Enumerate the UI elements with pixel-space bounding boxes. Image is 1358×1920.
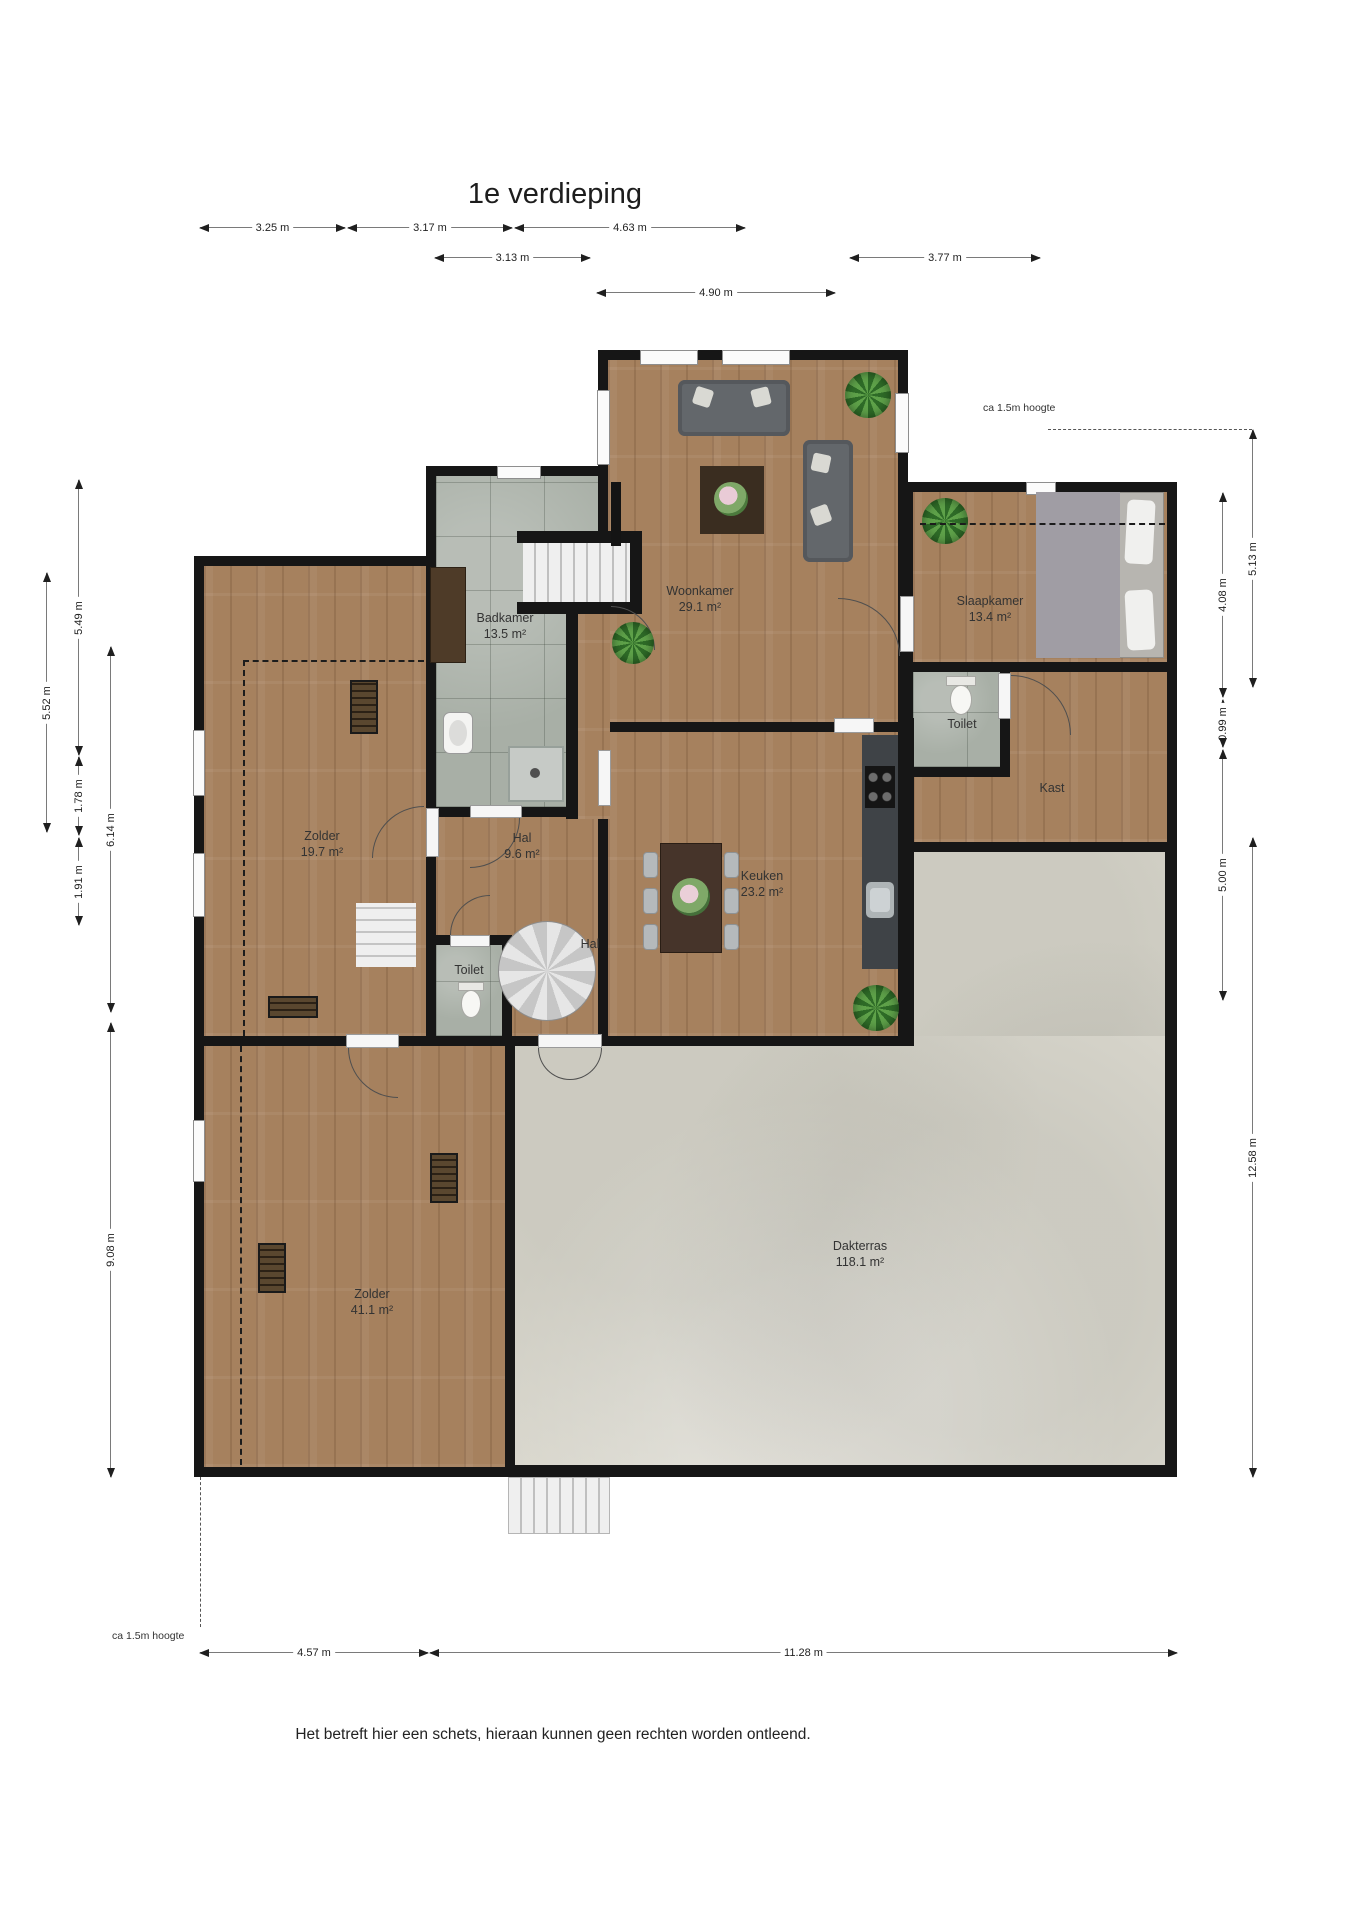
- room-label-kast: Kast: [1039, 780, 1064, 796]
- dimension: 4.63 m: [515, 227, 745, 228]
- dimension: 11.28 m: [430, 1652, 1177, 1653]
- chair: [724, 888, 739, 914]
- shower-drain: [530, 768, 540, 778]
- toilet-bowl: [461, 990, 481, 1018]
- knee-wall-line: [243, 660, 245, 1036]
- wall: [566, 602, 578, 819]
- terrace-door: [538, 1034, 602, 1048]
- room-label-dakterras: Dakterras118.1 m²: [833, 1238, 887, 1271]
- room-label-keuken: Keuken23.2 m²: [741, 868, 783, 901]
- disclaimer-text: Het betreft hier een schets, hieraan kun…: [153, 1726, 953, 1744]
- zolder-door: [346, 1034, 399, 1048]
- dimension: 9.08 m: [110, 1023, 111, 1477]
- room-label-hal-groot: Hal9.6 m²: [504, 830, 539, 863]
- roof-window: [268, 996, 318, 1018]
- room-label-badkamer: Badkamer13.5 m²: [477, 610, 534, 643]
- window: [193, 730, 205, 796]
- bathroom-door: [470, 805, 522, 818]
- plant: [845, 372, 891, 418]
- roof-window: [350, 680, 378, 734]
- toilet-door: [998, 673, 1011, 719]
- zolder-door: [426, 808, 439, 857]
- dimension: 4.57 m: [200, 1652, 428, 1653]
- room-label-zolder-klein: Zolder19.7 m²: [301, 828, 343, 861]
- window: [497, 466, 541, 479]
- dimension: 1.91 m: [78, 838, 79, 925]
- plant: [922, 498, 968, 544]
- room-zolder-groot: [194, 1036, 515, 1477]
- chair: [643, 852, 658, 878]
- wall: [517, 531, 642, 543]
- dimension: 0.99 m: [1222, 700, 1223, 747]
- toilet-door: [450, 935, 490, 947]
- window: [640, 350, 698, 365]
- height-note-line: [1048, 429, 1252, 430]
- flower-bouquet: [672, 878, 710, 916]
- roof-window: [430, 1153, 458, 1203]
- window: [193, 853, 205, 917]
- room-label-woonkamer: Woonkamer29.1 m²: [666, 583, 733, 616]
- dimension: 5.49 m: [78, 480, 79, 755]
- dimension: 3.17 m: [348, 227, 512, 228]
- dimension: 5.52 m: [46, 573, 47, 832]
- dimension: 5.00 m: [1222, 750, 1223, 1000]
- bathroom-cabinet: [430, 567, 466, 663]
- floor-plan: 1e verdieping: [0, 0, 1358, 1920]
- room-label-slaapkamer: Slaapkamer13.4 m²: [957, 593, 1024, 626]
- dimension: 3.13 m: [435, 257, 590, 258]
- knee-wall-line: [243, 660, 424, 662]
- dimension: 4.90 m: [597, 292, 835, 293]
- bed-blanket: [1036, 492, 1120, 658]
- chair: [724, 852, 739, 878]
- room-label-hal-klein: Hal: [581, 936, 600, 952]
- chair: [643, 888, 658, 914]
- staircase: [356, 903, 416, 967]
- room-label-zolder-groot: Zolder41.1 m²: [351, 1286, 393, 1319]
- dimension: 1.78 m: [78, 757, 79, 835]
- kitchen-double-door: [834, 718, 874, 733]
- room-label-toilet-boven: Toilet: [947, 716, 976, 732]
- toilet-bowl: [950, 685, 972, 715]
- dimension: 4.08 m: [1222, 493, 1223, 697]
- sofa: [678, 380, 790, 436]
- flower-bouquet: [714, 482, 748, 516]
- bed-pillow: [1124, 589, 1155, 650]
- dimension: 6.14 m: [110, 647, 111, 1012]
- room-label-toilet-beneden: Toilet: [454, 962, 483, 978]
- plant: [612, 622, 654, 664]
- window: [597, 390, 610, 465]
- exterior-steps: [508, 1477, 610, 1534]
- hall-door: [598, 750, 611, 806]
- washbasin-bowl: [449, 720, 467, 746]
- dimension: 3.25 m: [200, 227, 345, 228]
- wall: [898, 718, 914, 1046]
- height-note-line: [200, 1477, 201, 1627]
- tv: [611, 482, 621, 546]
- knee-wall-line: [240, 1046, 242, 1465]
- knee-wall-line: [920, 523, 1165, 525]
- window: [193, 1120, 205, 1182]
- bed-pillow: [1124, 499, 1155, 564]
- wall: [1165, 842, 1177, 1477]
- dimension: 5.13 m: [1252, 430, 1253, 687]
- stove: [865, 766, 895, 808]
- chair: [643, 924, 658, 950]
- dimension: 12.58 m: [1252, 838, 1253, 1477]
- bedroom-door: [900, 596, 914, 652]
- staircase: [523, 543, 630, 602]
- chair: [724, 924, 739, 950]
- window: [895, 393, 909, 453]
- height-note: ca 1.5m hoogte: [112, 1630, 184, 1642]
- height-note: ca 1.5m hoogte: [983, 402, 1055, 414]
- room-zolder-klein: [194, 556, 438, 1046]
- roof-window: [258, 1243, 286, 1293]
- sink-basin: [870, 888, 890, 912]
- sofa-pillow: [810, 452, 831, 473]
- window: [722, 350, 790, 365]
- plant: [853, 985, 899, 1031]
- page-title: 1e verdieping: [255, 178, 855, 211]
- wall: [505, 1465, 1177, 1477]
- dimension: 3.77 m: [850, 257, 1040, 258]
